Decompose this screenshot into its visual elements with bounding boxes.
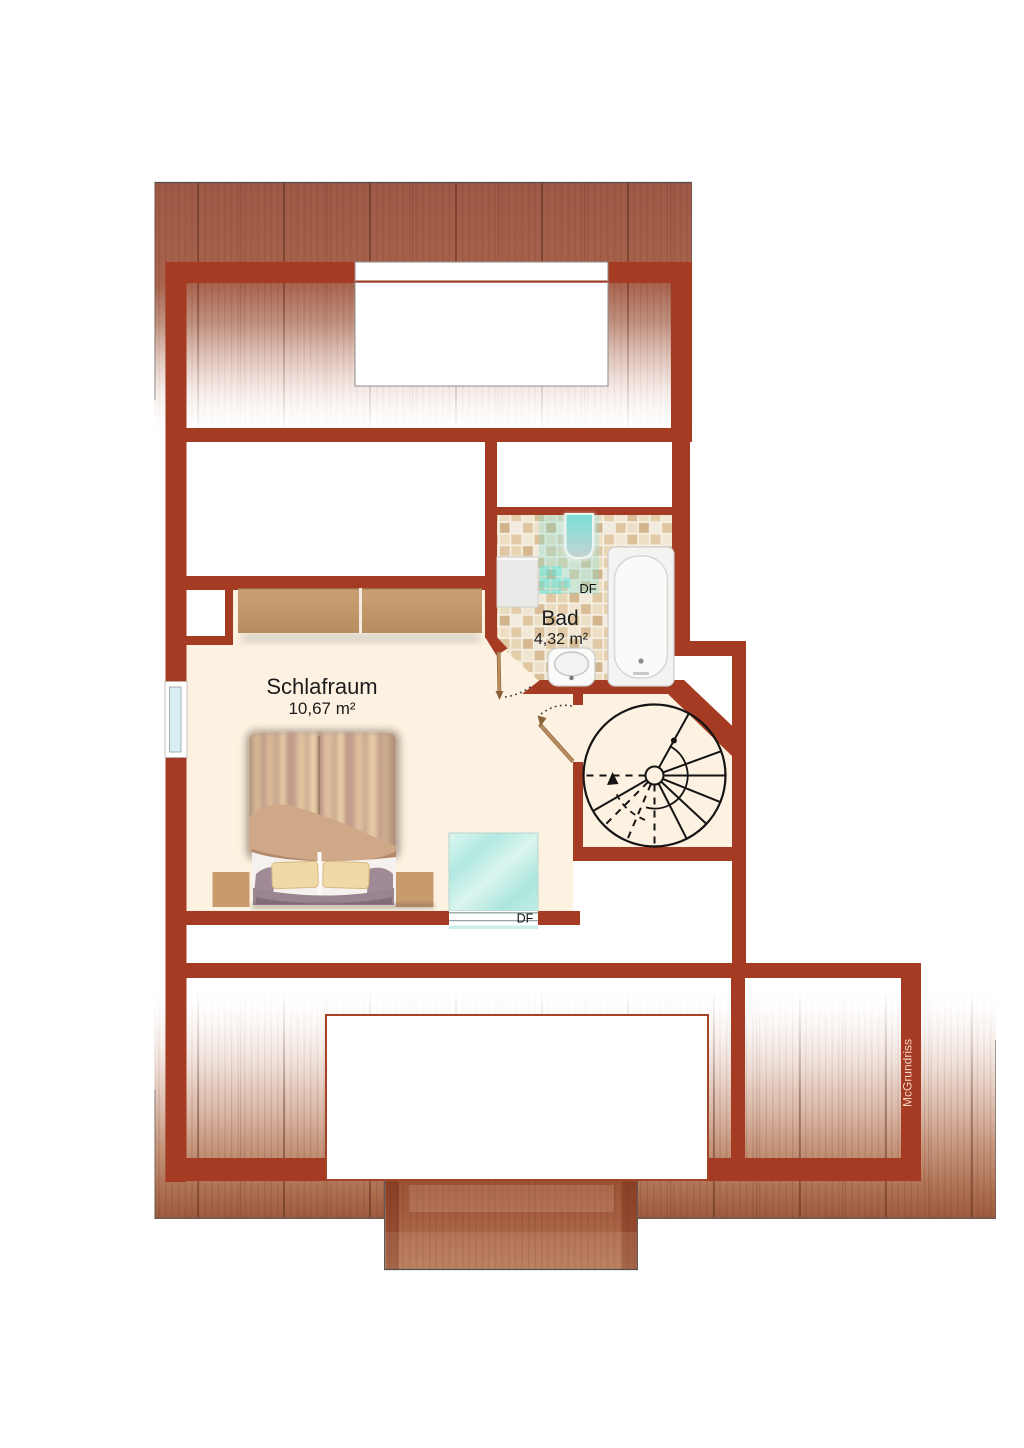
svg-text:DF: DF: [517, 912, 534, 926]
svg-text:Schlafraum: Schlafraum: [266, 674, 377, 699]
svg-text:4,32 m²: 4,32 m²: [534, 631, 589, 648]
svg-text:McGrundriss: McGrundriss: [901, 1039, 915, 1107]
svg-text:10,67 m²: 10,67 m²: [288, 699, 355, 718]
svg-text:DF: DF: [579, 581, 596, 596]
svg-text:Bad: Bad: [541, 607, 578, 630]
